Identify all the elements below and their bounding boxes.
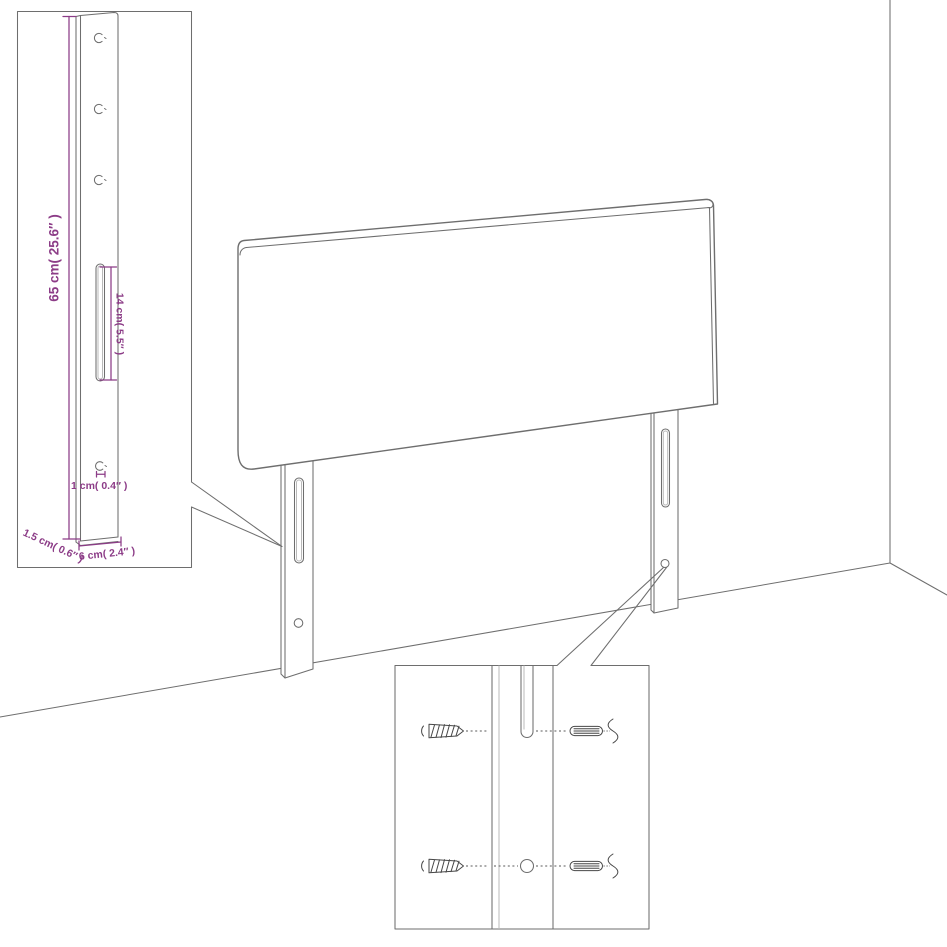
figure-canvas: 65 cm( 25.6″ ) 14 cm( 5.5″ ) 1 cm( 0.4″ … <box>0 0 947 947</box>
floor-line-right <box>890 563 947 595</box>
post-hole-1 <box>94 33 102 42</box>
inset-leg-strip <box>492 666 553 930</box>
panel-face <box>238 199 718 469</box>
post-bottom-hole-tick <box>105 466 107 467</box>
post-hole-1-tick <box>105 38 107 39</box>
post-slot-inner <box>98 266 103 379</box>
dim-leg-thickness: 1.5 cm( 0.6″ ) <box>21 527 85 565</box>
floor-line-left <box>0 563 890 717</box>
headboard-dimension-diagram: 65 cm( 25.6″ ) 14 cm( 5.5″ ) 1 cm( 0.4″ … <box>0 0 947 947</box>
screw-row-upper <box>422 719 618 743</box>
inset-slot <box>521 666 533 738</box>
headboard-left-leg <box>281 454 313 678</box>
callout-line <box>557 568 664 666</box>
dim-leg-width: 6 cm( 2.4″ ) <box>78 537 135 563</box>
post-bottom-edge <box>81 537 119 541</box>
callout-line <box>591 568 667 666</box>
post-hole-2-tick <box>105 109 107 110</box>
callout-line <box>192 482 283 547</box>
dim-bracket <box>97 472 106 478</box>
dim-hole-diameter: 1 cm( 0.4″ ) <box>71 472 127 493</box>
dim-label-leg-height: 65 cm( 25.6″ ) <box>47 214 62 302</box>
callout-cone-left <box>192 482 283 547</box>
post-hole-2 <box>94 104 102 113</box>
inset-hole <box>521 860 534 873</box>
post-top-right-edge <box>76 13 118 538</box>
dim-leg-height: 65 cm( 25.6″ ) <box>47 17 81 540</box>
dim-line <box>79 542 121 546</box>
post-slot <box>96 264 105 381</box>
dim-label-slot-length: 14 cm( 5.5″ ) <box>114 293 126 355</box>
leg-dimension-inset: 65 cm( 25.6″ ) 14 cm( 5.5″ ) 1 cm( 0.4″ … <box>18 12 192 568</box>
dim-label-hole-diameter: 1 cm( 0.4″ ) <box>71 480 127 492</box>
dim-label-leg-thickness: 1.5 cm( 0.6″ ) <box>21 527 85 565</box>
screw-head-flange <box>422 861 424 871</box>
callout-cone-right <box>557 568 667 666</box>
mounting-detail-inset <box>395 666 649 930</box>
post-bottom-hole <box>96 462 103 471</box>
dim-label-leg-width: 6 cm( 2.4″ ) <box>78 545 135 563</box>
inset-box-border <box>395 666 649 930</box>
screw-head-flange <box>422 726 424 736</box>
screw-row-lower <box>422 854 618 878</box>
post-hole-3-tick <box>105 180 107 181</box>
post-hole-3 <box>94 175 102 184</box>
dim-slot-length: 14 cm( 5.5″ ) <box>100 267 126 380</box>
callout-line <box>192 507 283 547</box>
headboard-panel <box>238 199 718 469</box>
inset-leg-post <box>76 13 118 546</box>
